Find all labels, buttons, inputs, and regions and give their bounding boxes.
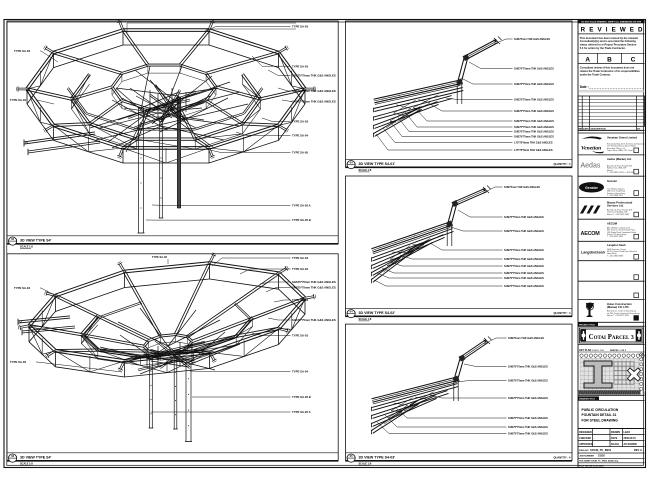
svg-text:PARCEL 1 OF 3: PARCEL 1 OF 3 (610, 349, 627, 352)
svg-text:DESCRIPTION: DESCRIPTION (591, 129, 606, 131)
svg-text:SHS75*75mm THK G&S ANGLES: SHS75*75mm THK G&S ANGLES (292, 74, 336, 78)
svg-text:TYPE SA-05 B: TYPE SA-05 B (292, 218, 311, 222)
svg-text:SHS75mm THK G&S ANGLES: SHS75mm THK G&S ANGLES (514, 37, 550, 41)
svg-text:TYPE SA-02: TYPE SA-02 (10, 98, 26, 102)
svg-text:3D VIEW TYPE S4-03': 3D VIEW TYPE S4-03' (359, 455, 396, 459)
svg-text:Consultant review of this docu: Consultant review of this document does … (580, 66, 635, 70)
svg-text:Macau T + 853 2875 3522: Macau T + 853 2875 3522 (607, 315, 629, 317)
svg-text:SHS75*75mm THK G&S ANGLES: SHS75*75mm THK G&S ANGLES (508, 416, 548, 420)
svg-text:SHS75*75mm THK G&S ANGLES: SHS75*75mm THK G&S ANGLES (514, 82, 554, 86)
svg-text:-: - (594, 437, 595, 440)
svg-text:SHS75*75mm THK G&S ANGLES: SHS75*75mm THK G&S ANGLES (504, 284, 544, 288)
svg-text:TYPE SA-03: TYPE SA-03 (292, 298, 308, 302)
svg-text:T + 852 2868 1967: T + 852 2868 1967 (607, 195, 623, 197)
svg-text:Consultant(s)(s) and is accord: Consultant(s)(s) and is accorded the fol… (580, 39, 636, 43)
svg-text:This document has been revised: This document has been revised by the re… (580, 36, 638, 40)
svg-text:TYPE SA-05: TYPE SA-05 (292, 150, 308, 154)
svg-text:DO NOT SCALE DRAWING. VERIFY A: DO NOT SCALE DRAWING. VERIFY ALL DIMENSI… (581, 20, 641, 23)
svg-text:TYPE SA-05 A: TYPE SA-05 A (292, 410, 311, 414)
svg-text:DWG NO: DWG NO (579, 450, 589, 452)
svg-text:KEY PLAN: KEY PLAN (579, 349, 591, 352)
svg-text:QUANTITY : 4: QUANTITY : 4 (554, 311, 572, 315)
svg-text:SHS75*75mm THK G&S ANGLES: SHS75*75mm THK G&S ANGLES (514, 130, 554, 134)
svg-text:SHS75*75mm THK G&S ANGLES: SHS75*75mm THK G&S ANGLES (504, 271, 544, 275)
svg-text:T + 852 2830 8888: T + 852 2830 8888 (607, 255, 623, 257)
svg-text:Taipa, Macau SAR, P.R. China: Taipa, Macau SAR, P.R. China (607, 149, 634, 152)
svg-text:SHS75*75mm THK G&S ANGLES: SHS75*75mm THK G&S ANGLES (514, 67, 554, 71)
svg-text:QUANTITY : 4: QUANTITY : 4 (554, 162, 572, 166)
svg-text:DATE: DATE (611, 437, 618, 440)
svg-text:C: C (631, 57, 636, 64)
svg-text:TYPE SA-05 A: TYPE SA-05 A (292, 203, 311, 207)
svg-text:SHS75*75mm THK G&S ANGLES: SHS75*75mm THK G&S ANGLES (508, 432, 548, 436)
svg-text:SHS75*75mm THK G&S ANGLES: SHS75*75mm THK G&S ANGLES (504, 229, 544, 233)
svg-text:TYPE SA-03: TYPE SA-03 (152, 255, 167, 259)
svg-text:Date :: Date : (580, 85, 589, 89)
svg-text:QUANTITY : 4: QUANTITY : 4 (554, 455, 572, 459)
svg-text:AECOM: AECOM (607, 222, 618, 226)
svg-text:SHS75*75mm THK G&S ANGLES: SHS75*75mm THK G&S ANGLES (292, 286, 336, 290)
svg-text:DESIGNED: DESIGNED (579, 431, 592, 434)
svg-text:PUBLIC CIRCULATION: PUBLIC CIRCULATION (582, 408, 619, 412)
svg-text:L75*75*6mm THK G&S ANGLES: L75*75*6mm THK G&S ANGLES (514, 141, 553, 145)
svg-text:SHS75mm THK G&S ANGLES: SHS75mm THK G&S ANGLES (508, 336, 544, 340)
svg-text:SHS75*75mm THK G&S ANGLES: SHS75*75mm THK G&S ANGLES (514, 119, 554, 123)
svg-text:SHS75*75mm THK G&S ANGLES: SHS75*75mm THK G&S ANGLES (508, 396, 548, 400)
svg-text:SHS75*75mm THK G&S ANGLES: SHS75*75mm THK G&S ANGLES (292, 100, 336, 104)
svg-text:BY: BY (637, 129, 641, 131)
svg-text:TYPE SA-03: TYPE SA-03 (292, 256, 308, 260)
svg-text:SCALE 1:8: SCALE 1:8 (359, 318, 372, 321)
svg-text:(Macau) CO. LTD.: (Macau) CO. LTD. (607, 305, 629, 309)
svg-text:3D VIEW TYPE S4': 3D VIEW TYPE S4' (20, 238, 52, 242)
svg-text:B: B (607, 57, 612, 64)
svg-text:SCALE 1:8: SCALE 1:8 (20, 245, 33, 248)
svg-text:TYPE SA-03: TYPE SA-03 (292, 267, 308, 271)
svg-text:TYPE SA-03: TYPE SA-03 (14, 49, 30, 53)
svg-text:SHS75*75mm THK G&S ANGLES: SHS75*75mm THK G&S ANGLES (504, 215, 544, 219)
svg-text:Langdon Seah: Langdon Seah (607, 243, 626, 247)
svg-text:PLOTTED ON 05 Jul 2009: PLOTTED ON 05 Jul 2009 (579, 465, 604, 467)
svg-text:TYPE SA-03: TYPE SA-03 (14, 286, 30, 290)
svg-text:R E V I E W E D: R E V I E W E D (581, 27, 644, 34)
svg-text:SCALE: SCALE (611, 443, 620, 446)
svg-text:COTAI PARCEL 3: COTAI PARCEL 3 (589, 334, 634, 341)
svg-text:SHS75*75mm THK G&S ANGLES: SHS75*75mm THK G&S ANGLES (504, 276, 544, 280)
svg-text:3D VIEW TYPE S4-01': 3D VIEW TYPE S4-01' (359, 162, 396, 166)
svg-text:SHS75*75mm THK G&S ANGLES: SHS75*75mm THK G&S ANGLES (504, 257, 544, 261)
svg-text:Aedas (Macau) Ltd.: Aedas (Macau) Ltd. (607, 157, 632, 161)
svg-text:AS SHOWN: AS SHOWN (624, 443, 637, 446)
svg-text:SCALE 1:8: SCALE 1:8 (20, 462, 33, 465)
svg-text:TYPE SA-05 B: TYPE SA-05 B (292, 395, 311, 399)
svg-text:REV A: REV A (634, 448, 642, 452)
svg-text:3D VIEW TYPE S4-02': 3D VIEW TYPE S4-02' (359, 311, 396, 315)
svg-text:LEAO: LEAO (624, 431, 631, 434)
svg-text:SCALE 1:2500: SCALE 1:2500 (592, 349, 604, 352)
svg-text:CHECKED: CHECKED (579, 437, 591, 440)
svg-text:TYPE SA-03: TYPE SA-03 (292, 64, 308, 68)
svg-text:SHS75mm THK G&S ANGLES: SHS75mm THK G&S ANGLES (504, 185, 540, 189)
svg-text:T + 852 3922 9000: T + 852 3922 9000 (607, 236, 623, 238)
svg-text:JOB NUMBER: JOB NUMBER (579, 456, 594, 458)
svg-text:Gensler: Gensler (585, 186, 598, 190)
svg-text:Services Ltd.: Services Ltd. (607, 204, 624, 208)
svg-text:TYPE SA-03: TYPE SA-03 (292, 25, 308, 29)
svg-text:SCALE 1:8: SCALE 1:8 (359, 462, 372, 465)
svg-text:2009-09-15: 2009-09-15 (624, 437, 637, 440)
svg-text:SHS75*75mm THK G&S ANGLES: SHS75*75mm THK G&S ANGLES (504, 264, 544, 268)
svg-text:APPROVED: APPROVED (579, 443, 593, 446)
svg-text:A: A (585, 57, 590, 64)
svg-text:TYPE SA-03: TYPE SA-03 (292, 120, 308, 124)
svg-text:DRAWN: DRAWN (611, 431, 620, 434)
svg-text:Aedas: Aedas (581, 163, 601, 170)
svg-text:S15UB_PC_8N04: S15UB_PC_8N04 (590, 448, 612, 452)
svg-text:Macau T + 853 2832 2682: Macau T + 853 2832 2682 (607, 214, 629, 216)
svg-text:5.4 for action by the Trade Co: 5.4 for action by the Trade Contractor. (580, 46, 626, 50)
svg-text:SHS75*75mm THK G&S ANGLES: SHS75*75mm THK G&S ANGLES (292, 89, 336, 93)
svg-text:LangdonSeah: LangdonSeah (581, 251, 606, 255)
svg-text:31526: 31526 (598, 455, 605, 458)
svg-text:Venetian: Venetian (581, 146, 601, 152)
svg-text:SHS75*75mm THK G&S ANGLES: SHS75*75mm THK G&S ANGLES (292, 318, 336, 322)
svg-text:under the Trade Contract.: under the Trade Contract. (580, 72, 611, 76)
svg-text:3D VIEW TYPE S4': 3D VIEW TYPE S4' (20, 455, 52, 459)
svg-text:TYPE SA-03: TYPE SA-03 (292, 334, 308, 338)
svg-text:FOUNTAIN DETAIL 31: FOUNTAIN DETAIL 31 (582, 413, 617, 417)
svg-text:DATE: DATE (583, 128, 589, 131)
svg-text:-: - (594, 443, 595, 446)
svg-text:relieve the Trade Contracto: relieve the Trade Contractor of its resp… (580, 69, 641, 73)
svg-text:SHS75*75mm THK G&S ANGLES: SHS75*75mm THK G&S ANGLES (514, 98, 554, 102)
svg-text:L75*75*6mm THK G&S ANGLES: L75*75*6mm THK G&S ANGLES (514, 148, 553, 152)
svg-text:SHS75*75mm THK G&S ANGLES: SHS75*75mm THK G&S ANGLES (514, 125, 554, 129)
svg-text:status referred to in Project: status referred to in Project Procedure … (580, 43, 637, 47)
svg-text:SHS75*75mm THK G&S ANGLES: SHS75*75mm THK G&S ANGLES (508, 425, 548, 429)
svg-text:SHS75*75mm THK G&S ANGLES: SHS75*75mm THK G&S ANGLES (514, 135, 554, 139)
svg-text:Gensler: Gensler (607, 179, 617, 183)
svg-text:SHS75*75mm THK G&S ANGLES: SHS75*75mm THK G&S ANGLES (514, 109, 554, 113)
svg-text:SHS75*75mm THK G&S ANGLES: SHS75*75mm THK G&S ANGLES (504, 248, 544, 252)
svg-text:SHS75*75mm THK G&S ANGLES: SHS75*75mm THK G&S ANGLES (508, 379, 548, 383)
svg-text:MK: MK (579, 129, 583, 131)
svg-text:SHS75*75mm THK G&S ANGLES: SHS75*75mm THK G&S ANGLES (292, 280, 336, 284)
svg-text:SCALE 1:8: SCALE 1:8 (359, 169, 372, 172)
svg-text:Venetian Orient Limited: Venetian Orient Limited (607, 136, 637, 140)
svg-text:TYPE SA-04: TYPE SA-04 (292, 133, 308, 137)
svg-text:FOR STEEL DRAWING: FOR STEEL DRAWING (582, 418, 619, 422)
svg-text:FILE NAME S15UB_PC_8N04_S4045: FILE NAME S15UB_PC_8N04_S4045.dwg (579, 460, 619, 463)
svg-text:AECOM: AECOM (581, 231, 601, 237)
svg-text:SHS75*75mm THK G&S ANGLES: SHS75*75mm THK G&S ANGLES (508, 365, 548, 369)
svg-text:TYPE SA-02: TYPE SA-02 (10, 360, 26, 364)
svg-text:TYPE SA-04: TYPE SA-04 (292, 369, 308, 373)
